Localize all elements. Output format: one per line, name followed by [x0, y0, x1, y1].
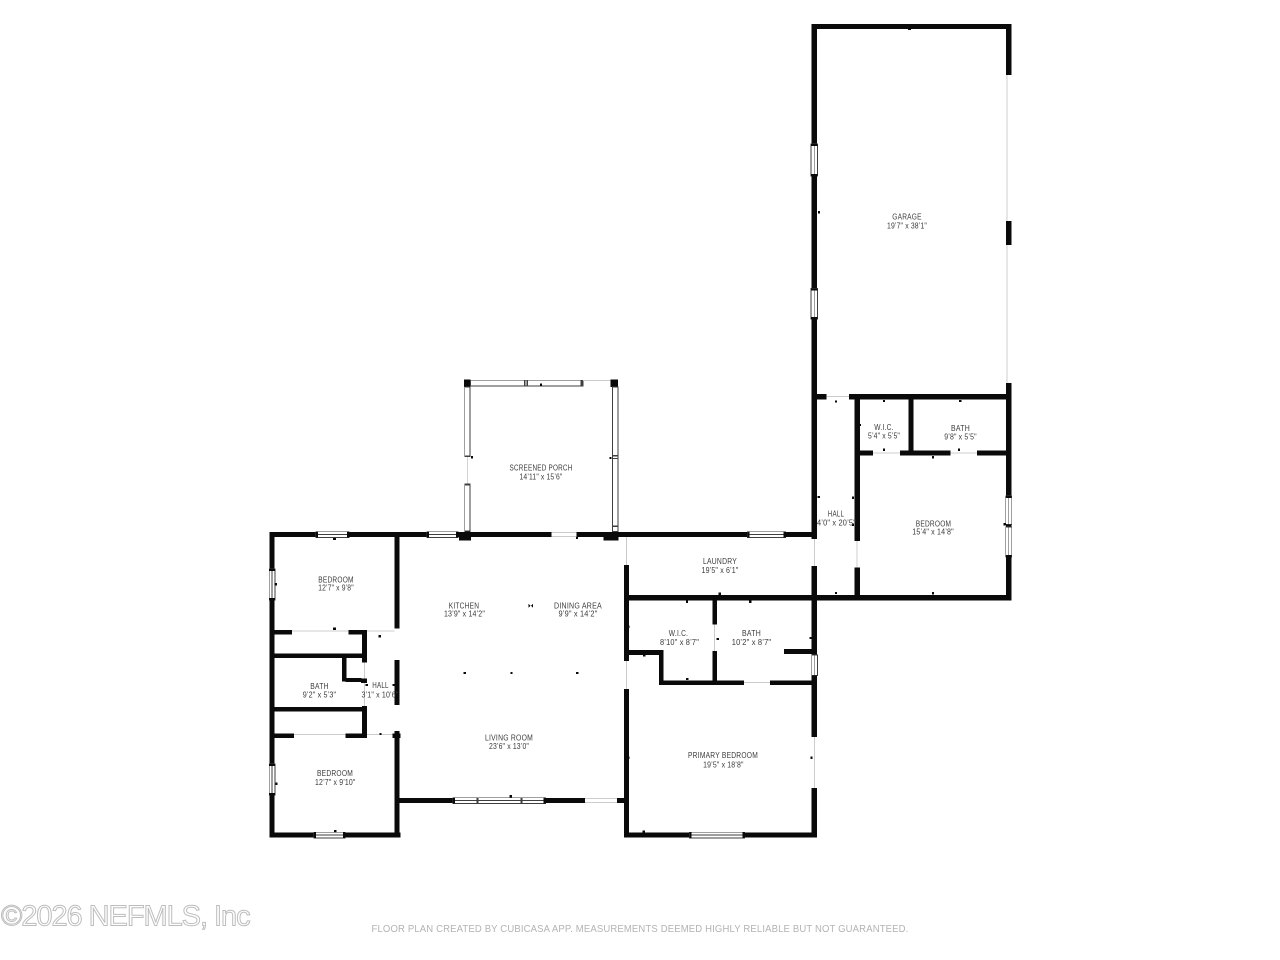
svg-text:9’9" x 14’2": 9’9" x 14’2" [559, 609, 598, 619]
svg-text:PRIMARY BEDROOM: PRIMARY BEDROOM [688, 750, 758, 760]
svg-text:FLOOR PLAN CREATED BY CUBICASA: FLOOR PLAN CREATED BY CUBICASA APP. MEAS… [372, 924, 909, 935]
svg-text:12’7" x 9’8": 12’7" x 9’8" [318, 583, 354, 593]
svg-text:HALL: HALL [372, 680, 389, 690]
svg-text:19’7" x 38’1": 19’7" x 38’1" [887, 221, 927, 231]
svg-text:12’7" x 9’10": 12’7" x 9’10" [315, 777, 356, 787]
svg-text:8’10" x 8’7": 8’10" x 8’7" [660, 637, 699, 647]
svg-text:14’11" x 15’6": 14’11" x 15’6" [520, 472, 563, 482]
svg-text:9’8" x 5’5": 9’8" x 5’5" [944, 432, 977, 442]
svg-text:4’0" x 20’5": 4’0" x 20’5" [817, 518, 856, 528]
svg-text:19’5" x 6’1": 19’5" x 6’1" [702, 565, 739, 575]
svg-text:13’9" x 14’2": 13’9" x 14’2" [444, 609, 485, 619]
svg-text:23’6" x 13’0": 23’6" x 13’0" [489, 741, 529, 751]
svg-text:5’4" x 5’5": 5’4" x 5’5" [868, 431, 900, 441]
svg-text:9’2" x 5’3": 9’2" x 5’3" [303, 690, 337, 700]
svg-text:©2026 NEFMLS, Inc: ©2026 NEFMLS, Inc [1, 900, 250, 932]
svg-text:3’1" x 10’6": 3’1" x 10’6" [362, 690, 399, 700]
svg-text:15’4" x 14’8": 15’4" x 14’8" [912, 527, 954, 537]
svg-text:10’2" x 8’7": 10’2" x 8’7" [732, 637, 772, 647]
svg-text:19’5" x 18’8": 19’5" x 18’8" [703, 760, 744, 770]
